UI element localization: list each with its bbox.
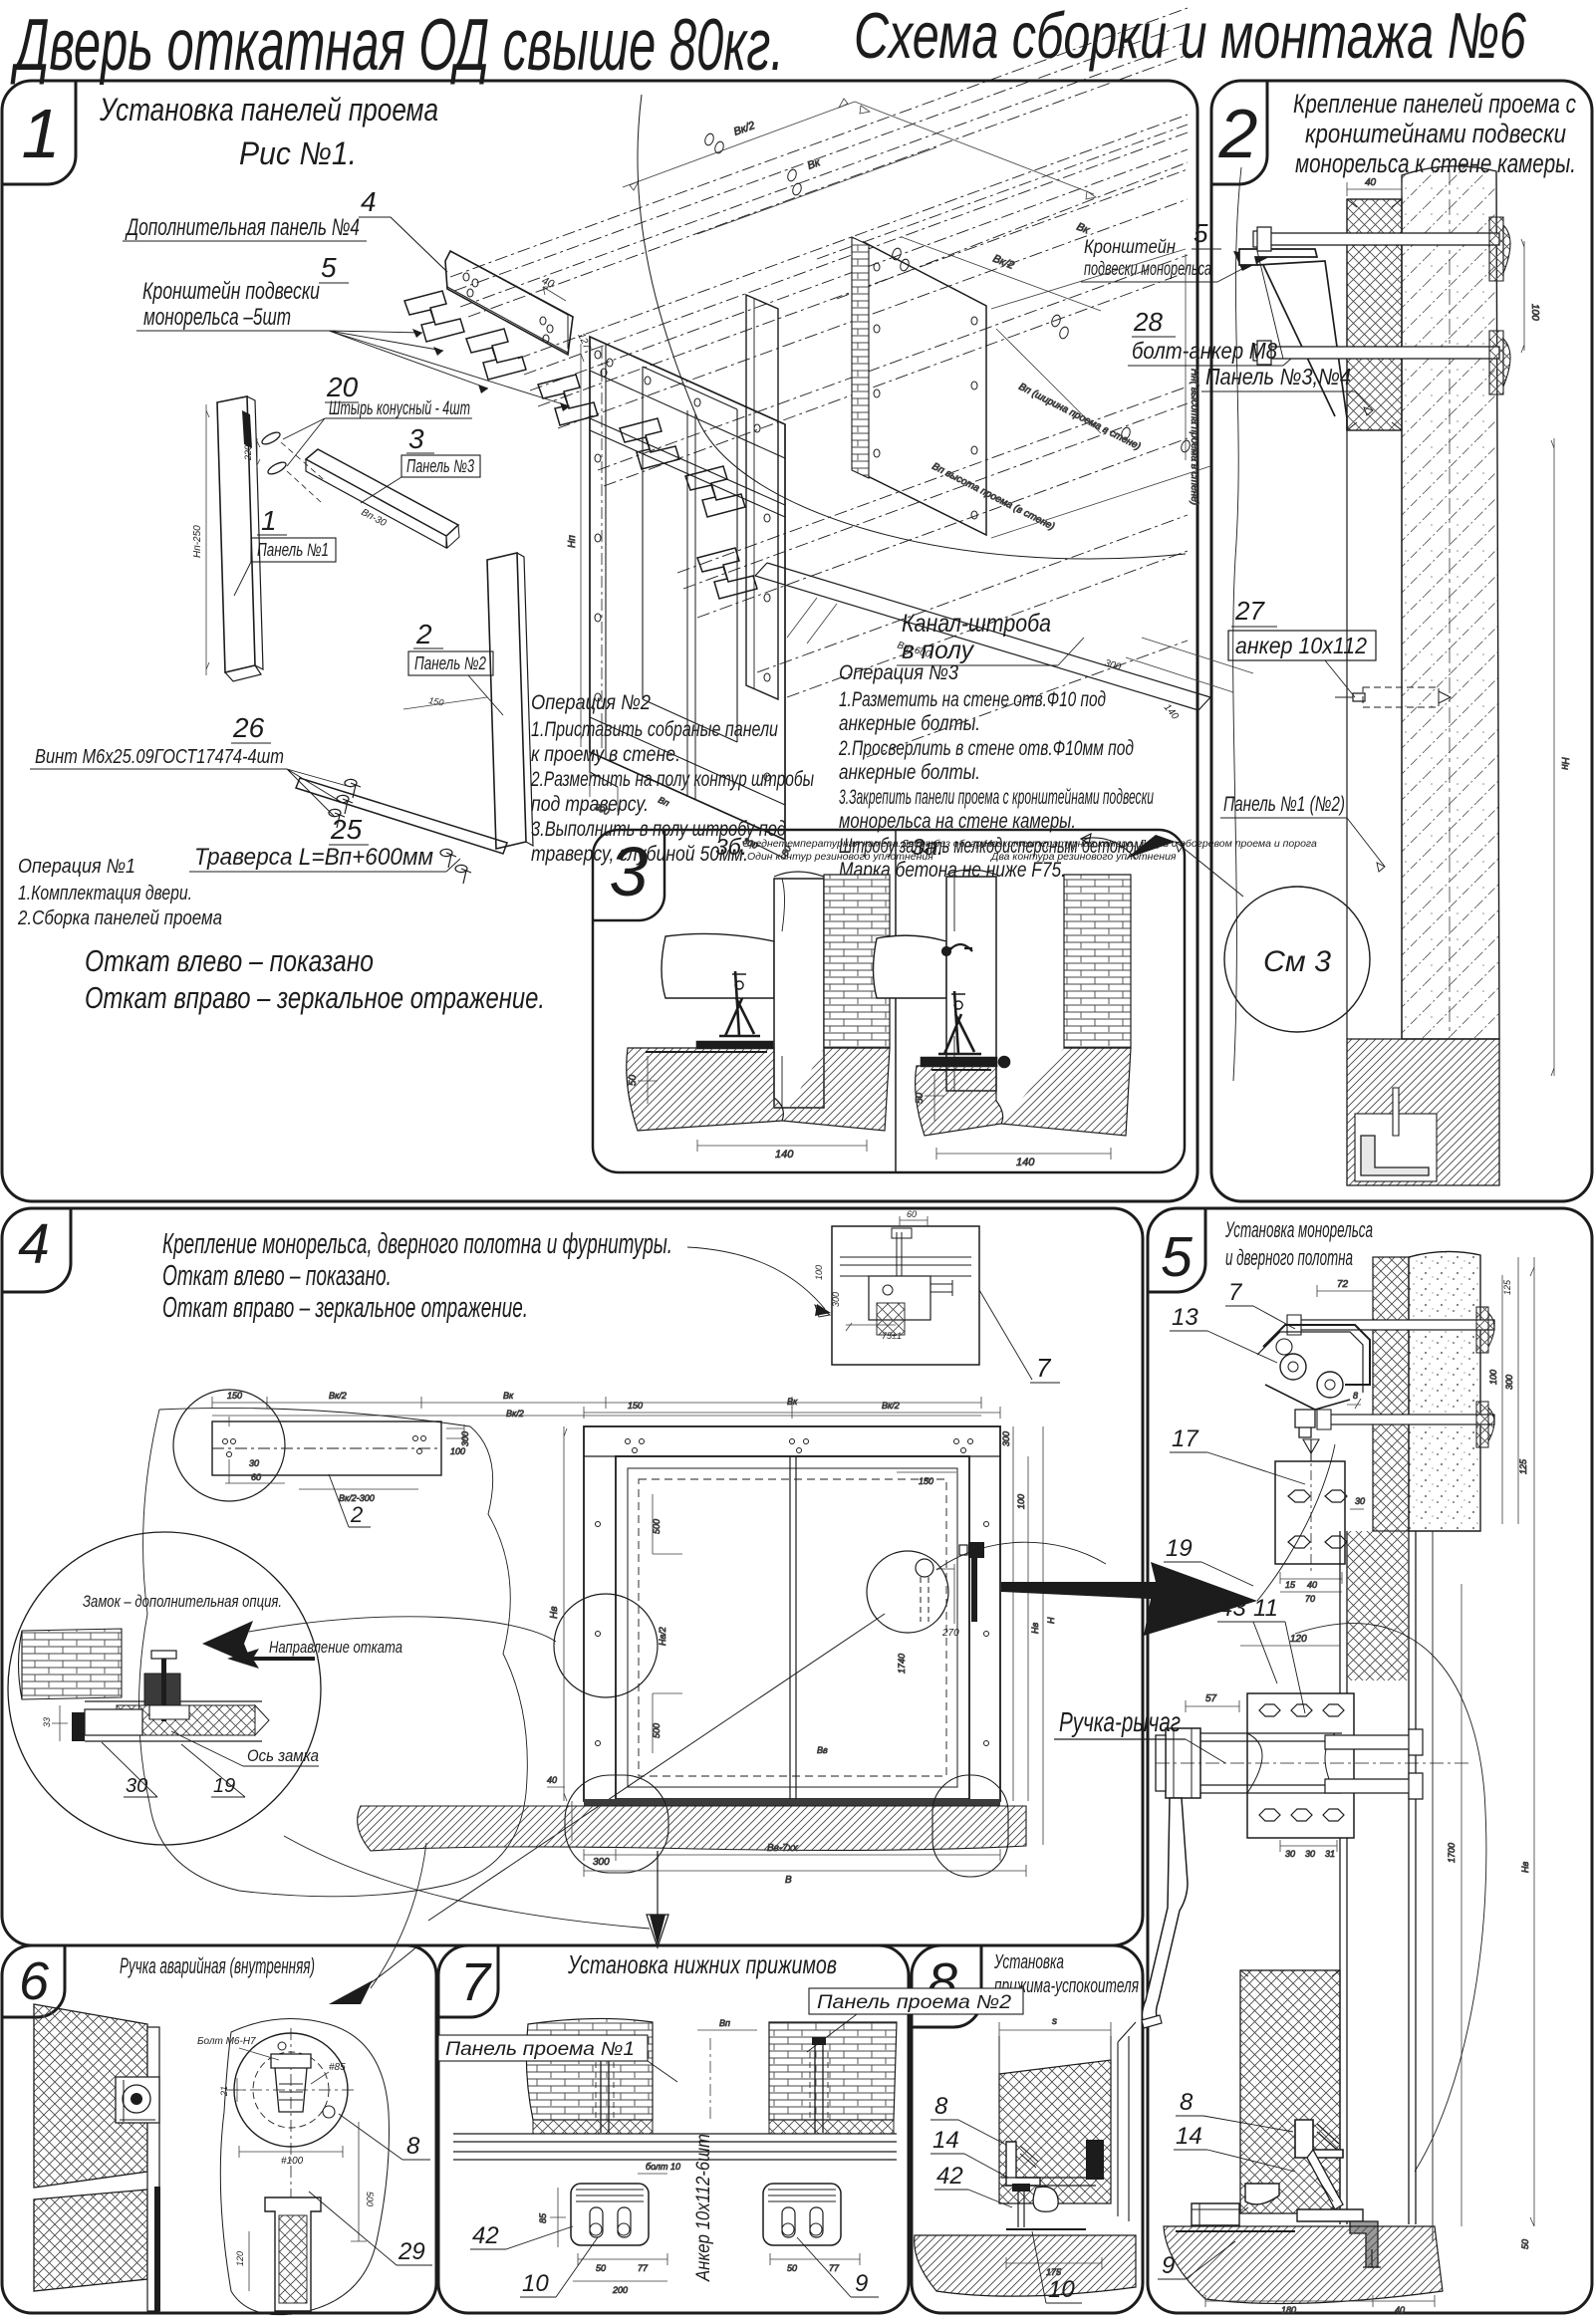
svg-text:монорельса на стене камеры.: монорельса на стене камеры. [839,810,1076,833]
svg-text:500: 500 [365,2192,375,2206]
svg-text:85: 85 [538,2212,548,2223]
svg-text:50: 50 [628,1074,639,1086]
svg-text:Панель проема №2: Панель проема №2 [817,1992,1011,2013]
svg-text:14: 14 [1176,2123,1202,2150]
svg-text:Установка панелей проема: Установка панелей проема [99,92,438,128]
svg-text:50: 50 [915,1092,926,1104]
svg-text:s: s [1052,2016,1057,2027]
svg-text:30: 30 [1285,1849,1295,1859]
svg-text:Откат вправо – зеркальное отра: Откат вправо – зеркальное отражение. [162,1292,528,1324]
svg-text:13: 13 [1172,1304,1198,1331]
svg-text:100: 100 [1016,1494,1026,1509]
svg-text:8: 8 [1353,1391,1358,1401]
svg-text:Нв: Нв [549,1607,560,1619]
svg-text:Операция №2: Операция №2 [531,691,651,714]
svg-text:Замок – дополнительная опция.: Замок – дополнительная опция. [83,1592,282,1611]
svg-text:Вк/2: Вк/2 [506,1409,524,1419]
svg-text:Нп: Нп [567,535,578,548]
svg-text:Вк/2: Вк/2 [882,1401,900,1411]
svg-text:140: 140 [1016,1157,1035,1168]
svg-text:Среднетемпературная камера.Две: Среднетемпературная камера.Дверь без обо… [742,838,998,850]
svg-text:Вв-7хх: Вв-7хх [767,1843,799,1854]
svg-text:57: 57 [1205,1693,1217,1704]
svg-text:Панель №3,№4: Панель №3,№4 [1205,364,1351,389]
svg-text:40: 40 [547,1775,557,1785]
svg-text:Дверь откатная ОД свыше 80кг.: Дверь откатная ОД свыше 80кг. [10,5,784,86]
svg-text:60: 60 [907,1209,917,1219]
svg-text:Кронштейн: Кронштейн [1084,237,1176,258]
svg-text:30: 30 [1305,1849,1315,1859]
svg-text:500: 500 [652,1519,662,1534]
svg-text:Нп-250: Нп-250 [192,525,203,558]
svg-text:40: 40 [1395,2305,1405,2315]
svg-text:150: 150 [628,1401,643,1411]
svg-text:Нн( высота проема в стене): Нн( высота проема в стене) [1189,369,1199,505]
svg-text:1: 1 [22,95,61,172]
svg-text:125: 125 [1502,1279,1512,1295]
svg-text:70: 70 [1305,1594,1315,1604]
svg-text:3: 3 [408,423,424,454]
svg-text:25: 25 [330,814,363,845]
svg-text:Вп: Вп [719,2018,730,2028]
svg-text:Один контур резинового уплотне: Один контур резинового уплотнения [747,851,933,863]
svg-text:7: 7 [460,1952,492,2012]
svg-text:#85: #85 [329,2062,346,2073]
svg-text:Крепление монорельса, дверного: Крепление монорельса, дверного полотна и… [162,1228,672,1260]
svg-text:50: 50 [596,2263,606,2273]
svg-text:60: 60 [251,1472,261,1482]
svg-text:8: 8 [1180,2089,1194,2116]
svg-text:2: 2 [415,619,432,649]
svg-text:4: 4 [361,186,377,217]
svg-text:Нв: Нв [1030,1623,1040,1634]
svg-text:29: 29 [398,2238,425,2265]
svg-text:27: 27 [1234,596,1265,626]
svg-text:Н: Н [1046,1617,1056,1624]
svg-text:19: 19 [1166,1535,1193,1562]
svg-text:Ось замка: Ось замка [247,1746,319,1765]
svg-text:100: 100 [450,1446,465,1456]
svg-text:1: 1 [261,505,277,536]
svg-text:Болт М6-Н7: Болт М6-Н7 [197,2036,256,2047]
svg-text:2: 2 [350,1502,363,1527]
svg-text:30: 30 [126,1775,147,1797]
svg-text:5: 5 [321,252,337,283]
svg-text:#100: #100 [281,2156,304,2167]
svg-text:Операция №1: Операция №1 [18,856,135,878]
svg-text:300: 300 [1504,1375,1514,1390]
svg-text:180: 180 [1281,2305,1296,2315]
svg-text:болт-анкер М8: болт-анкер М8 [1132,338,1277,364]
svg-text:Панель №1: Панель №1 [257,540,329,560]
svg-text:5: 5 [1194,218,1208,248]
svg-text:30: 30 [1355,1496,1365,1506]
svg-text:кронштейнами подвески: кронштейнами подвески [1305,119,1566,148]
svg-text:Нн: Нн [1559,757,1570,770]
svg-text:Дополнительная панель №4: Дополнительная панель №4 [125,214,360,241]
svg-text:300: 300 [593,1857,610,1868]
svg-text:Панель №2: Панель №2 [414,653,486,673]
svg-text:анкер 10х112: анкер 10х112 [1235,633,1367,658]
svg-text:Панель №1 (№2): Панель №1 (№2) [1223,793,1345,816]
svg-text:Направление отката: Направление отката [269,1638,402,1657]
svg-text:Откат влево – показано.: Откат влево – показано. [162,1260,392,1292]
svg-text:270: 270 [941,1628,959,1639]
svg-text:Вк: Вк [787,1397,798,1407]
svg-text:7: 7 [1036,1353,1052,1383]
svg-text:31: 31 [1325,1849,1335,1859]
svg-text:Два контура резинового уплотне: Два контура резинового уплотнения [990,851,1177,863]
svg-text:10: 10 [522,2270,549,2297]
svg-text:4: 4 [18,1212,50,1276]
svg-text:Установка: Установка [993,1951,1064,1973]
svg-text:33: 33 [42,1717,52,1727]
svg-text:Нв: Нв [1520,1862,1530,1873]
svg-text:42: 42 [472,2222,499,2249]
svg-text:30: 30 [249,1458,259,1468]
svg-text:монорельса –5шт: монорельса –5шт [143,304,291,331]
svg-text:Схема сборки и монтажа №6: Схема сборки и монтажа №6 [854,0,1527,72]
svg-text:17: 17 [1172,1425,1199,1452]
svg-text:Крепление панелей проема с: Крепление панелей проема с [1293,89,1576,119]
svg-text:1.Приставить собраные панели: 1.Приставить собраные панели [531,718,778,741]
svg-text:8: 8 [406,2133,420,2160]
svg-text:100: 100 [814,1265,824,1280]
svg-text:6: 6 [19,1951,50,2011]
svg-text:См 3: См 3 [1263,945,1331,978]
svg-text:1740: 1740 [897,1654,907,1674]
svg-text:72: 72 [1337,1279,1349,1290]
svg-text:Установка монорельса: Установка монорельса [1224,1217,1373,1242]
svg-text:Нв/2: Нв/2 [658,1627,667,1646]
svg-text:Ручка-рычаг: Ручка-рычаг [1059,1706,1181,1737]
svg-text:9: 9 [1162,2252,1175,2279]
svg-text:2.Просверлить в стене отв.Ф10м: 2.Просверлить в стене отв.Ф10мм под [838,737,1134,760]
svg-text:2.Сборка панелей проема: 2.Сборка панелей проема [17,907,222,929]
svg-text:175: 175 [1046,2267,1062,2277]
svg-text:21: 21 [219,2086,229,2097]
svg-text:Кронштейн подвески: Кронштейн подвески [142,278,320,305]
svg-text:40: 40 [1365,177,1377,188]
svg-text:анкерные болты.: анкерные болты. [839,761,980,784]
svg-text:9: 9 [855,2270,868,2297]
svg-text:Панель проема №1: Панель проема №1 [445,2039,635,2060]
svg-text:220: 220 [243,445,253,461]
svg-text:125: 125 [1518,1458,1528,1474]
svg-text:75±1: 75±1 [882,1331,902,1341]
svg-text:и дверного полотна: и дверного полотна [1225,1245,1353,1270]
svg-text:120: 120 [1290,1634,1307,1645]
svg-text:8: 8 [934,2093,948,2120]
svg-text:43: 43 [1219,1595,1246,1622]
svg-text:300: 300 [1001,1431,1011,1446]
svg-text:Вв: Вв [817,1745,828,1755]
svg-text:42: 42 [936,2163,963,2190]
svg-text:Штырь конусный - 4шт: Штырь конусный - 4шт [329,398,470,419]
svg-text:14: 14 [932,2127,959,2154]
svg-text:3.Закрепить панели проема с кр: 3.Закрепить панели проема с кронштейнами… [839,786,1154,809]
svg-text:Траверса L=Вп+600мм: Траверса L=Вп+600мм [194,844,433,871]
svg-text:15: 15 [1285,1580,1296,1590]
svg-text:Откат влево – показано: Откат влево – показано [85,943,374,978]
svg-text:140: 140 [775,1149,794,1161]
svg-text:100: 100 [1488,1370,1498,1385]
svg-text:300: 300 [460,1431,470,1446]
svg-text:Откат вправо – зеркальное отра: Откат вправо – зеркальное отражение. [85,980,545,1015]
svg-text:1.Разметить на стене отв.Ф10 п: 1.Разметить на стене отв.Ф10 под [839,688,1106,711]
svg-text:Панель №3: Панель №3 [406,456,474,476]
svg-text:300: 300 [831,1292,841,1307]
svg-text:40: 40 [1307,1580,1317,1590]
svg-text:10: 10 [1048,2276,1075,2303]
svg-text:Винт М6х25.09ГОСТ17474-4шт: Винт М6х25.09ГОСТ17474-4шт [35,746,284,768]
svg-text:11: 11 [1253,1595,1278,1622]
svg-text:7: 7 [1228,1279,1243,1306]
svg-text:Канал-штроба: Канал-штроба [902,610,1051,638]
svg-text:Вк: Вк [503,1391,514,1401]
svg-text:150: 150 [919,1476,933,1486]
svg-text:50: 50 [1520,2239,1530,2249]
svg-text:Ручка аварийная (внутренняя): Ручка аварийная (внутренняя) [120,1953,315,1978]
svg-text:3а.: 3а. [912,834,943,860]
svg-text:5: 5 [1161,1225,1193,1289]
svg-text:26: 26 [232,712,265,743]
svg-text:100: 100 [1529,304,1540,321]
svg-text:В: В [785,1875,792,1886]
svg-text:1700: 1700 [1447,1843,1457,1863]
svg-text:500: 500 [652,1723,662,1738]
svg-text:50: 50 [787,2263,797,2273]
svg-text:28: 28 [1133,307,1163,337]
svg-text:77: 77 [829,2263,840,2273]
svg-text:Вк/2: Вк/2 [329,1391,347,1401]
svg-text:болт 10: болт 10 [646,2162,680,2172]
svg-text:200: 200 [612,2285,628,2295]
svg-text:Рис №1.: Рис №1. [239,135,357,171]
svg-text:Анкер 10х112-6шт: Анкер 10х112-6шт [693,2134,714,2282]
svg-text:2.Разметить на полу контур штр: 2.Разметить на полу контур штробы [530,768,814,791]
svg-text:120: 120 [235,2251,245,2266]
svg-text:1.Комплектация двери.: 1.Комплектация двери. [18,883,192,904]
svg-text:77: 77 [638,2263,649,2273]
svg-text:Установка нижних прижимов: Установка нижних прижимов [567,1949,837,1979]
svg-text:150: 150 [227,1391,242,1401]
svg-text:2: 2 [1218,95,1258,172]
